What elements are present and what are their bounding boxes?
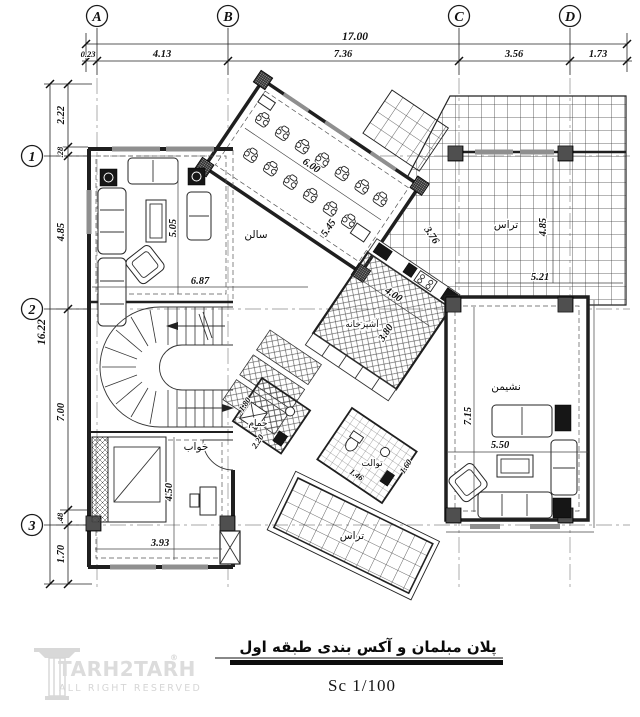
room-label-terrace-bottom: تراس: [340, 530, 365, 542]
axis-bubble-C: C: [449, 6, 470, 27]
room-label-terrace-top: تراس: [494, 219, 519, 231]
room-terrace-bottom: تراس: [267, 471, 439, 600]
registered-mark: ®: [170, 653, 178, 662]
dim-total-height: 16.22: [36, 319, 48, 345]
axis-bubble-B: B: [218, 6, 239, 27]
desk-chair: [190, 494, 199, 507]
shaft-box: [220, 531, 240, 564]
axis-label-1: 1: [29, 150, 36, 165]
room-bedroom: خواب 4.50 3.93: [86, 432, 240, 570]
room-label-toilet: توالت: [361, 459, 383, 469]
dim-top-seg1: 4.13: [152, 49, 171, 60]
room-label-kitchen: آشپزخانه: [345, 318, 379, 330]
axis-label-3: 3: [28, 519, 36, 534]
dim-terrace-width: 5.21: [531, 272, 549, 283]
sheet-title: پلان مبلمان و آکس بندی طبقه اول: [239, 638, 496, 657]
axis-label-a: A: [91, 10, 101, 25]
dim-side-seg4: .48: [55, 512, 65, 523]
dim-top-seg2: 7.36: [334, 49, 353, 60]
column: [448, 146, 463, 161]
room-sitting: نشیمن 7.15 5.50: [446, 297, 594, 532]
dim-side-seg3: 7.00: [56, 402, 67, 421]
dim-top-seg4: 1.73: [589, 49, 607, 60]
room-label-bedroom: خواب: [184, 441, 209, 453]
column: [220, 516, 235, 531]
axis-bubble-2: 2: [22, 299, 43, 320]
dim-side-seg2: 4.85: [56, 223, 67, 242]
dim-terrace-height: 4.85: [538, 218, 549, 237]
title-underline-bar: [230, 660, 503, 665]
column: [446, 508, 461, 523]
column: [558, 297, 573, 312]
left-dimension-strip: 1 2 3 16.22 2.22 .28 4.85 7.00 .48 1.70: [22, 80, 93, 588]
brand-tagline: ALL RIGHT RESERVED: [59, 683, 202, 694]
axis-bubble-1: 1: [22, 146, 43, 167]
column: [558, 146, 573, 161]
dim-top-seg3: 3.56: [504, 49, 524, 60]
dim-living-height: 5.05: [168, 219, 179, 237]
room-label-sitting: نشیمن: [491, 381, 521, 393]
axis-bubble-D: D: [560, 6, 581, 27]
dim-side-seg1: .28: [55, 146, 65, 157]
axis-label-2: 2: [28, 303, 36, 318]
dim-sitting-height: 7.15: [463, 407, 474, 425]
column: [446, 297, 461, 312]
axis-bubble-3: 3: [22, 515, 43, 536]
dim-side-seg5: 1.70: [56, 544, 67, 563]
dim-living-width: 6.87: [191, 276, 210, 287]
sheet-scale: Sc 1/100: [328, 676, 396, 695]
dim-bedroom-height: 4.50: [164, 482, 175, 502]
dim-side-seg0: 2.22: [56, 105, 67, 125]
drawing-sheet: A B C D 17.00 0.23 4.13 7.36 3.56 1.73 1: [0, 0, 640, 717]
room-label-bath: حمام: [248, 419, 267, 429]
dim-bedroom-width: 3.93: [150, 538, 169, 549]
desk: [200, 487, 216, 515]
room-label-salon: سالن: [244, 229, 267, 241]
dim-top-seg0: 0.23: [81, 49, 97, 59]
axis-bubble-A: A: [87, 6, 108, 27]
axis-label-b: B: [222, 10, 232, 25]
top-dimension-strip: A B C D 17.00 0.23 4.13 7.36 3.56 1.73: [81, 6, 632, 76]
dim-sitting-width: 5.50: [491, 440, 510, 451]
watermark-logo: TARH2TARH ® ALL RIGHT RESERVED: [34, 648, 202, 700]
floor-plan-canvas: A B C D 17.00 0.23 4.13 7.36 3.56 1.73 1: [0, 0, 640, 717]
axis-label-d: D: [564, 10, 575, 25]
bed: [92, 437, 166, 522]
dim-total-width: 17.00: [342, 31, 368, 43]
axis-label-c: C: [454, 10, 464, 25]
title-block: پلان مبلمان و آکس بندی طبقه اول Sc 1/100: [215, 638, 503, 695]
